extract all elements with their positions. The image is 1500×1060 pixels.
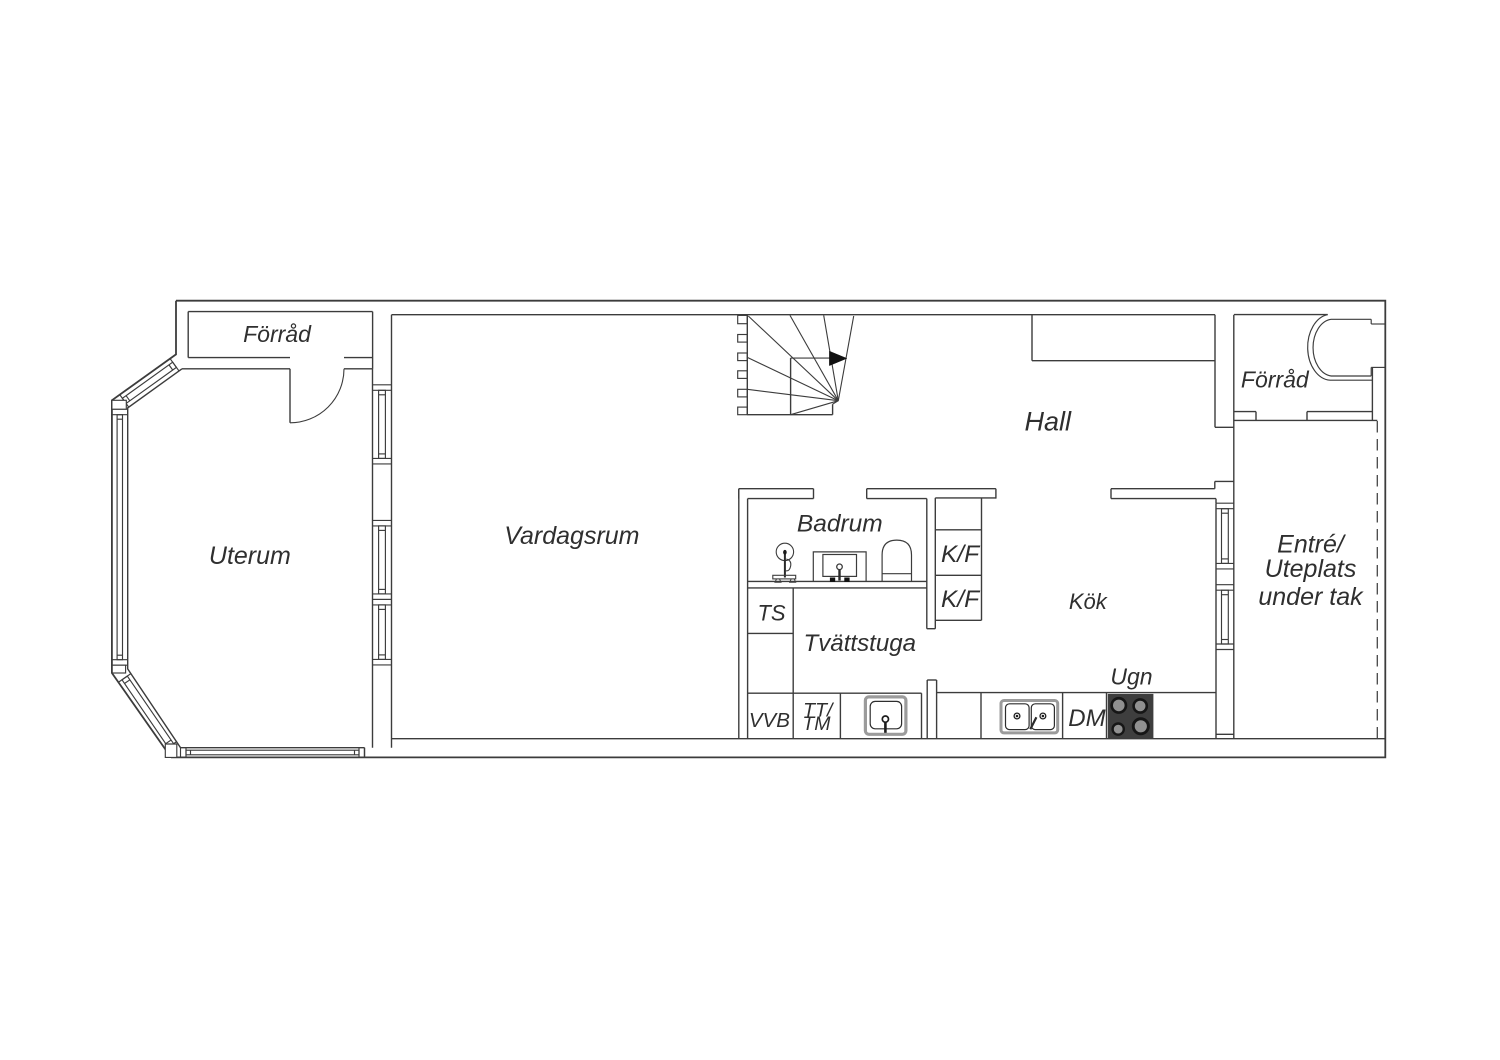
svg-text:Tvättstuga: Tvättstuga [804, 630, 917, 657]
svg-text:Vardagsrum: Vardagsrum [504, 522, 639, 550]
svg-text:Uteplats: Uteplats [1265, 555, 1357, 583]
svg-text:Ugn: Ugn [1110, 664, 1152, 690]
svg-text:under tak: under tak [1258, 583, 1364, 611]
svg-text:K/F: K/F [941, 541, 981, 568]
svg-text:K/F: K/F [941, 586, 981, 613]
svg-text:TS: TS [757, 601, 785, 626]
svg-text:Uterum: Uterum [209, 542, 291, 570]
svg-text:DM: DM [1068, 705, 1105, 732]
svg-text:TM: TM [802, 713, 831, 735]
svg-text:Hall: Hall [1025, 407, 1073, 437]
svg-text:Kök: Kök [1069, 589, 1108, 614]
svg-text:Förråd: Förråd [243, 321, 312, 347]
svg-text:Badrum: Badrum [797, 510, 883, 537]
svg-text:VVB: VVB [749, 709, 790, 732]
svg-text:Förråd: Förråd [1241, 367, 1310, 393]
